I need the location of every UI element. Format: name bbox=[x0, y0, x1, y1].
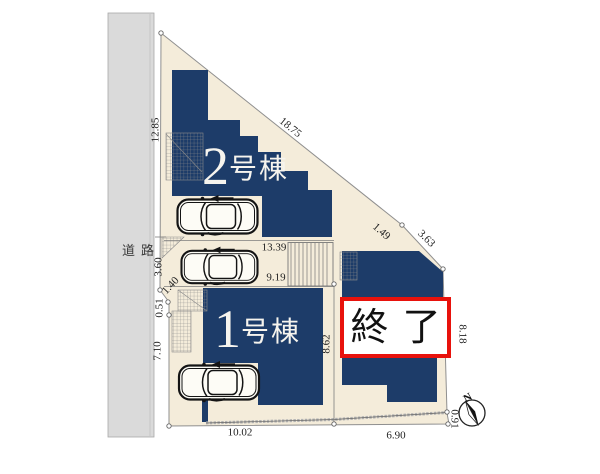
dim-right-8-18: 8.18 bbox=[457, 324, 468, 343]
road bbox=[108, 13, 154, 437]
building-1-number: 1 bbox=[214, 302, 241, 356]
building-2-label: 2号棟 bbox=[202, 140, 289, 192]
road-label: 道路 bbox=[122, 240, 160, 259]
car-icon bbox=[179, 361, 259, 402]
building-2-number: 2 bbox=[202, 139, 229, 193]
dim-left-7-10: 7.10 bbox=[153, 341, 164, 360]
compass-icon bbox=[459, 400, 485, 426]
dim-bottom-6-90: 6.90 bbox=[386, 431, 405, 442]
status-badge: 終了 bbox=[340, 297, 451, 358]
building-1-label: 1号棟 bbox=[214, 303, 301, 355]
dim-left-0-51: 0.51 bbox=[155, 298, 166, 317]
dim-corner-0-91: 0.91 bbox=[449, 409, 460, 428]
dim-left-3-60: 3.60 bbox=[154, 257, 165, 276]
car-icon bbox=[178, 195, 258, 236]
dim-mid-9-19: 9.19 bbox=[266, 273, 285, 284]
car-icon bbox=[182, 247, 258, 286]
building-2-suffix: 号棟 bbox=[229, 148, 289, 184]
site-plan-canvas bbox=[0, 0, 600, 474]
dim-mid-8-62: 8.62 bbox=[322, 334, 333, 353]
dim-left-12-85: 12.85 bbox=[151, 118, 162, 143]
dim-bottom-10-02: 10.02 bbox=[228, 428, 253, 439]
site-plan: 道路 2号棟 1号棟 終了 N 12.85 3.60 1.40 0.51 7.1… bbox=[0, 0, 600, 474]
status-text: 終了 bbox=[350, 309, 454, 347]
dim-mid-13-39: 13.39 bbox=[262, 243, 287, 254]
building-1-suffix: 号棟 bbox=[241, 311, 301, 347]
